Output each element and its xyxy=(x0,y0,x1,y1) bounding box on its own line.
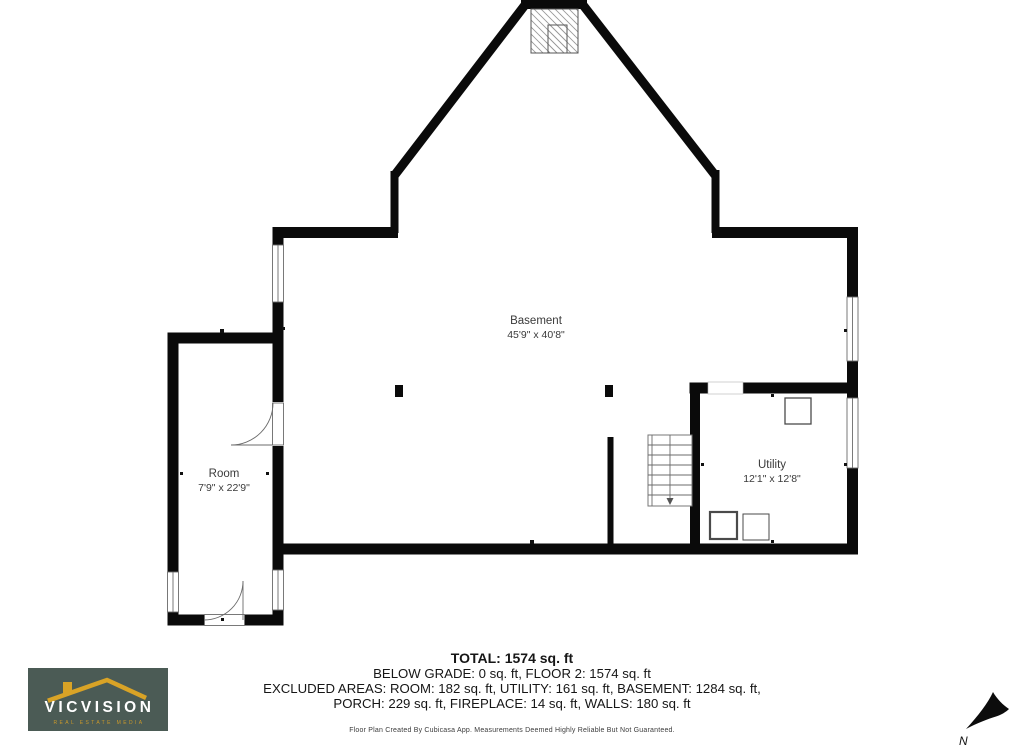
north-arrow-icon: N xyxy=(953,678,1021,750)
window-icon xyxy=(273,245,284,302)
window-icon xyxy=(273,570,284,610)
fireplace-icon xyxy=(531,9,578,53)
water-heater-icon xyxy=(785,398,811,424)
room-dims-basement: 45'9" x 40'8" xyxy=(507,329,565,341)
support-posts xyxy=(395,385,613,397)
window-icon xyxy=(847,297,858,361)
room-side-door xyxy=(231,402,284,446)
room-label-utility: Utility xyxy=(758,459,786,471)
utility-door-opening xyxy=(708,382,743,394)
vicvision-logo: VICVISION REAL ESTATE MEDIA xyxy=(28,668,168,731)
logo-title: VICVISION xyxy=(42,699,155,717)
washer-icon xyxy=(710,512,737,539)
room-dims-room: 7'9" x 22'9" xyxy=(198,482,250,494)
room-bottom-door xyxy=(204,581,245,626)
room-label-room: Room xyxy=(209,468,240,480)
summary-total: TOTAL: 1574 sq. ft xyxy=(0,651,1024,666)
window-icon xyxy=(168,572,179,612)
window-icon xyxy=(847,398,858,468)
floor-plan-page: Basement 45'9" x 40'8" Room 7'9" x 22'9"… xyxy=(0,0,1024,754)
stairs-icon xyxy=(648,435,692,506)
floor-plan: Basement 45'9" x 40'8" Room 7'9" x 22'9"… xyxy=(0,0,1024,754)
room-label-basement: Basement xyxy=(510,315,563,327)
room-dims-utility: 12'1" x 12'8" xyxy=(743,473,801,485)
logo-tagline: REAL ESTATE MEDIA xyxy=(52,720,145,726)
windows xyxy=(168,245,859,612)
north-label: N xyxy=(959,734,968,748)
dryer-icon xyxy=(743,514,769,540)
